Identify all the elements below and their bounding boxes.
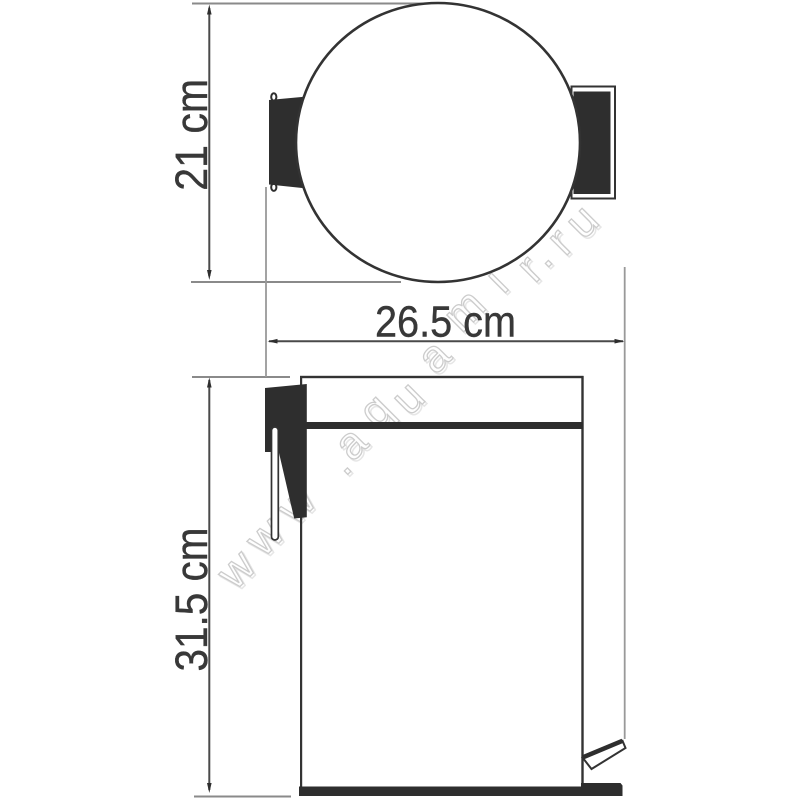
svg-text:31.5 cm: 31.5 cm — [166, 528, 217, 672]
svg-text:26.5 cm: 26.5 cm — [375, 298, 516, 347]
svg-text:21 cm: 21 cm — [166, 79, 217, 191]
